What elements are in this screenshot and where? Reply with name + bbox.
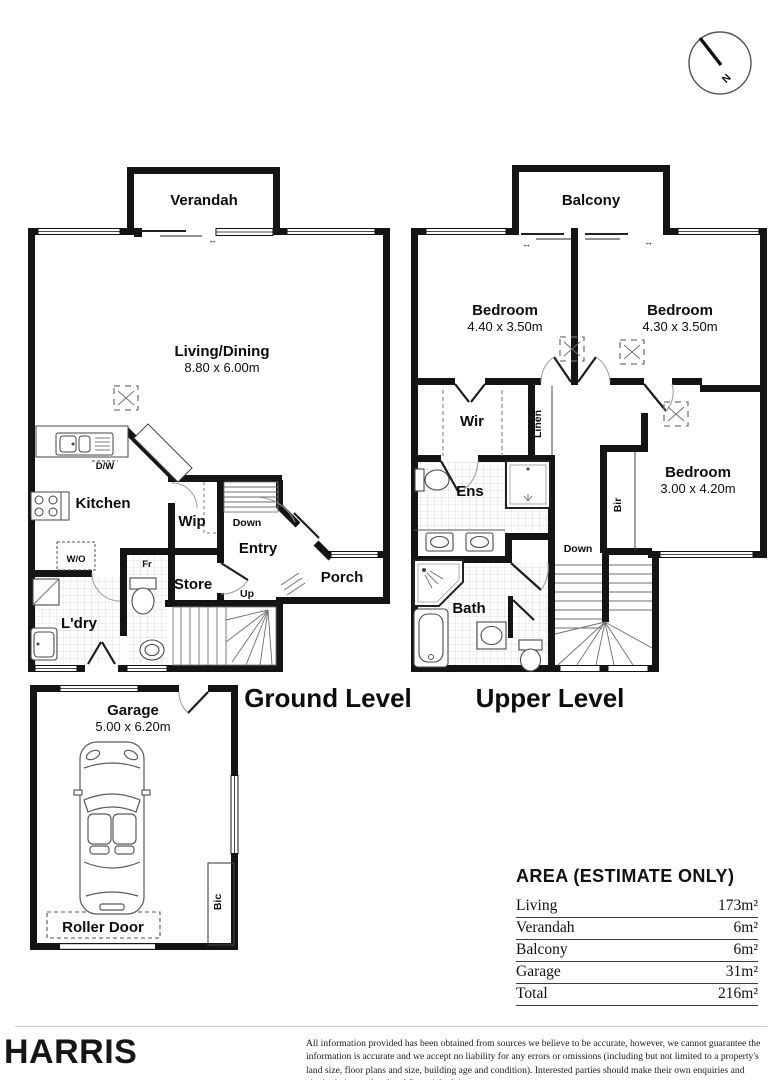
area-row-label: Total bbox=[516, 985, 548, 1003]
area-row-value: 6m² bbox=[734, 919, 758, 937]
stove-icon bbox=[31, 492, 69, 520]
area-row-label: Garage bbox=[516, 963, 561, 981]
area-row-total: Total 216m² bbox=[516, 984, 758, 1006]
ground-label-wip: Wip bbox=[178, 513, 205, 530]
area-row-value: 31m² bbox=[726, 963, 758, 981]
trough-icon bbox=[31, 628, 57, 660]
basin-icon bbox=[140, 640, 164, 660]
upper-dims-bed1: 4.40 x 3.50m bbox=[467, 319, 542, 334]
ground-label-ldry: L'dry bbox=[61, 615, 98, 632]
area-row-label: Verandah bbox=[516, 919, 575, 937]
roller-door-label: Roller Door bbox=[62, 919, 144, 936]
ground-label-living: Living/Dining bbox=[175, 343, 270, 360]
compass: N bbox=[689, 32, 751, 94]
upper-floor-plan: ↔ ↔ bbox=[411, 165, 767, 672]
area-row-label: Living bbox=[516, 897, 557, 915]
upper-label-ens: Ens bbox=[456, 483, 484, 500]
bathtub-icon bbox=[414, 609, 448, 667]
upper-label-balcony: Balcony bbox=[562, 192, 621, 209]
ceiling-fan-icon bbox=[114, 386, 138, 410]
vanity-icon bbox=[414, 530, 505, 551]
garage-label: Garage bbox=[107, 702, 159, 719]
window bbox=[38, 229, 375, 235]
window bbox=[560, 666, 600, 672]
ground-label-fr: Fr bbox=[142, 559, 152, 570]
front-door-leaf bbox=[294, 513, 319, 538]
area-row-verandah: Verandah 6m² bbox=[516, 918, 758, 940]
upper-label-bath: Bath bbox=[452, 600, 485, 617]
area-row-value: 6m² bbox=[734, 941, 758, 959]
footer-separator bbox=[15, 1026, 767, 1027]
compass-north-label: N bbox=[720, 72, 734, 86]
area-row-label: Balcony bbox=[516, 941, 568, 959]
ground-label-wo: W/O bbox=[67, 554, 86, 565]
area-table-title: AREA (ESTIMATE ONLY) bbox=[516, 866, 758, 887]
ground-level-title: Ground Level bbox=[244, 683, 412, 713]
ground-label-up: Up bbox=[240, 588, 254, 600]
garage-dims: 5.00 x 6.20m bbox=[95, 719, 170, 734]
compass-needle-icon bbox=[700, 38, 721, 65]
ground-label-verandah: Verandah bbox=[170, 192, 238, 209]
ceiling-fan-icon bbox=[620, 340, 644, 364]
upper-label-wir: Wir bbox=[460, 413, 484, 430]
ground-label-dw: D/W bbox=[96, 461, 115, 472]
svg-text:↔: ↔ bbox=[208, 235, 217, 245]
sliding-door-icon: ↔ bbox=[134, 228, 273, 245]
area-row-value: 173m² bbox=[718, 897, 758, 915]
stairs-down-icon bbox=[224, 482, 278, 512]
upper-label-bed3: Bedroom bbox=[665, 464, 731, 481]
upper-dims-bed2: 4.30 x 3.50m bbox=[642, 319, 717, 334]
ground-label-kitchen: Kitchen bbox=[75, 495, 130, 512]
area-row-garage: Garage 31m² bbox=[516, 962, 758, 984]
stairs-up-icon bbox=[173, 607, 276, 665]
area-row-balcony: Balcony 6m² bbox=[516, 940, 758, 962]
svg-text:↔: ↔ bbox=[644, 237, 653, 247]
ground-floor-plan: ↔ bbox=[28, 167, 390, 673]
upper-label-bed2: Bedroom bbox=[647, 302, 713, 319]
harris-logo: HARRIS bbox=[4, 1033, 137, 1072]
upper-door-arcs bbox=[441, 357, 673, 590]
svg-text:↔: ↔ bbox=[522, 239, 531, 249]
toilet-icon bbox=[130, 578, 156, 614]
floorplan-page: N ↔ bbox=[0, 0, 782, 1080]
pantry-shelves bbox=[204, 482, 218, 533]
area-row-living: Living 173m² bbox=[516, 896, 758, 918]
toilet-icon bbox=[519, 640, 542, 671]
upper-dims-bed3: 3.00 x 4.20m bbox=[660, 481, 735, 496]
garage-plan: Garage 5.00 x 6.20m Roller Door Bic bbox=[30, 684, 238, 950]
area-row-value: 216m² bbox=[718, 985, 758, 1003]
sliding-door-icon: ↔ ↔ bbox=[521, 228, 653, 249]
ground-label-store: Store bbox=[174, 576, 212, 593]
upper-label-bir: Bir bbox=[612, 498, 624, 513]
sink-icon bbox=[56, 433, 113, 455]
bench-unit bbox=[134, 424, 192, 482]
car-icon bbox=[74, 742, 150, 914]
upper-label-down: Down bbox=[564, 543, 593, 555]
vanity-icon bbox=[477, 622, 506, 649]
ground-label-porch: Porch bbox=[321, 569, 364, 586]
ground-label-down: Down bbox=[233, 517, 262, 529]
shower-icon bbox=[506, 461, 550, 508]
ground-label-entry: Entry bbox=[239, 540, 278, 557]
ground-dims-living: 8.80 x 6.00m bbox=[184, 360, 259, 375]
toilet-icon bbox=[415, 469, 449, 491]
upper-label-linen: Linen bbox=[532, 410, 544, 438]
ceiling-fan-icon bbox=[664, 402, 688, 426]
disclaimer-text: All information provided has been obtain… bbox=[306, 1037, 768, 1080]
upper-level-title: Upper Level bbox=[476, 683, 625, 713]
area-table: AREA (ESTIMATE ONLY) Living 173m² Verand… bbox=[516, 866, 758, 1006]
window bbox=[608, 666, 648, 672]
garage-label-bic: Bic bbox=[212, 894, 224, 911]
upper-label-bed1: Bedroom bbox=[472, 302, 538, 319]
